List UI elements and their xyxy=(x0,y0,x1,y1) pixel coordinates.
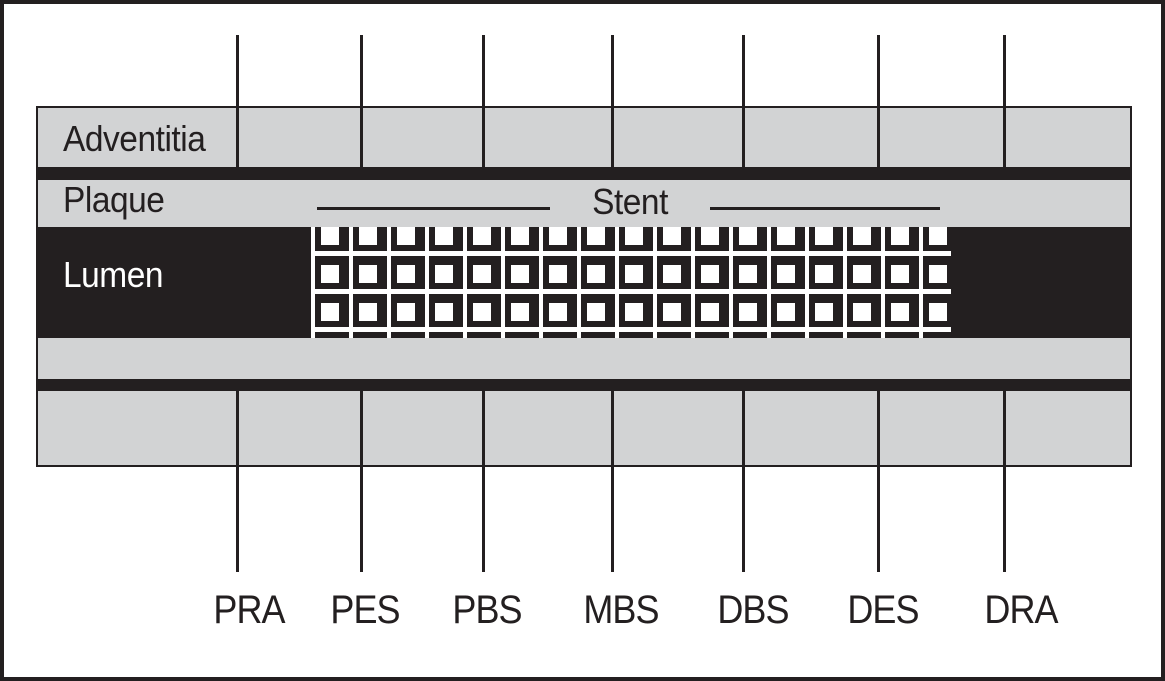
segment-label-dra: DRA xyxy=(984,590,1057,630)
segment-divider-line-bottom xyxy=(742,391,745,572)
stent-extent-line-left xyxy=(317,207,550,210)
segment-divider-line-top xyxy=(611,35,614,167)
segment-divider-line-bottom xyxy=(360,391,363,572)
stent-mesh xyxy=(311,227,951,338)
plaque-band-top xyxy=(38,180,1130,227)
segment-divider-line-top xyxy=(482,35,485,167)
segment-divider-line-top xyxy=(360,35,363,167)
media-separator-top xyxy=(38,167,1130,180)
lumen-label: Lumen xyxy=(63,257,163,293)
segment-label-pes: PES xyxy=(330,590,399,630)
segment-divider-line-top xyxy=(877,35,880,167)
segment-divider-line-bottom xyxy=(611,391,614,572)
segment-divider-line-bottom xyxy=(877,391,880,572)
segment-divider-line-top xyxy=(1003,35,1006,167)
media-separator-bottom xyxy=(38,379,1130,391)
segment-divider-line-bottom xyxy=(482,391,485,572)
segment-label-dbs: DBS xyxy=(717,590,788,630)
segment-divider-line-top xyxy=(236,35,239,167)
segment-divider-line-top xyxy=(742,35,745,167)
segment-divider-line-bottom xyxy=(1003,391,1006,572)
segment-label-pra: PRA xyxy=(213,590,284,630)
segment-label-des: DES xyxy=(847,590,918,630)
segment-label-mbs: MBS xyxy=(583,590,658,630)
adventitia-band-bottom xyxy=(38,391,1130,465)
segment-divider-line-bottom xyxy=(236,391,239,572)
adventitia-label: Adventitia xyxy=(63,121,205,157)
segment-label-pbs: PBS xyxy=(452,590,521,630)
stent-label: Stent xyxy=(592,184,668,220)
plaque-label: Plaque xyxy=(63,182,164,218)
plaque-band-bottom xyxy=(38,338,1130,379)
stent-extent-line-right xyxy=(710,207,940,210)
